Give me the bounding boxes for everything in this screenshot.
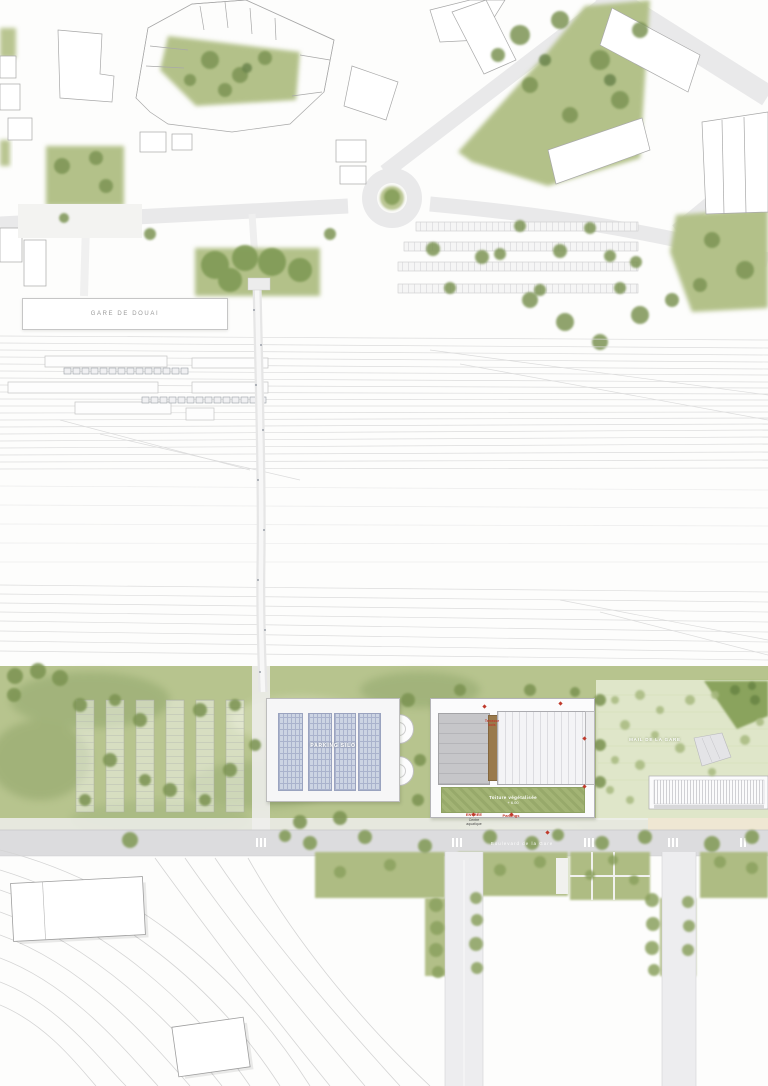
station-platforms (8, 356, 268, 420)
entrance-marker-icon (582, 784, 586, 788)
south-greens (315, 852, 768, 976)
beige-paving-strip (648, 818, 768, 830)
entrance-marker-icon (482, 704, 486, 708)
parking-silo-label: PARKING SILO (267, 743, 399, 749)
pv-roof-panel (334, 713, 356, 791)
east-service-strip (585, 711, 595, 785)
wood-terrace-label: Terrasse bois (475, 719, 509, 727)
gare-de-douai-building: GARE DE DOUAI (22, 298, 228, 330)
building-blocks (0, 0, 768, 286)
esplanade-label: MAIL DE LA GARE (608, 737, 702, 742)
parkings-label: Parkings (496, 814, 526, 819)
green-roof-level: + 6.00 (507, 800, 518, 805)
entrance-marker-icon (558, 701, 562, 705)
aquatic-centre-building: Terrasse bois Toiture végétalisée + 6.00 (430, 698, 595, 818)
ribbed-hall-roof (497, 711, 587, 785)
parking-silo-building: PARKING SILO (266, 698, 400, 802)
pv-roof-panel (278, 713, 303, 791)
bus-shelter-building (649, 776, 768, 809)
esplanade (596, 680, 768, 820)
main-entrance-label: ENTRÉE Centre aquatique (452, 813, 496, 827)
pv-roof-panel (358, 713, 381, 791)
plan-base-drawing (0, 0, 768, 1086)
station-plaza (18, 204, 142, 238)
footbridge (248, 278, 270, 692)
green-roof-strip: Toiture végétalisée + 6.00 (441, 787, 585, 813)
gare-de-douai-label: GARE DE DOUAI (91, 311, 159, 317)
roundabout-tree (384, 189, 400, 205)
site-plan-canvas: GARE DE DOUAI PARKING SILO Terrasse bois… (0, 0, 768, 1086)
boulevard-name-label: Boulevard de la Gare (462, 841, 582, 846)
rail-yard-buildings (11, 876, 254, 1079)
pv-roof-panel (308, 713, 332, 791)
